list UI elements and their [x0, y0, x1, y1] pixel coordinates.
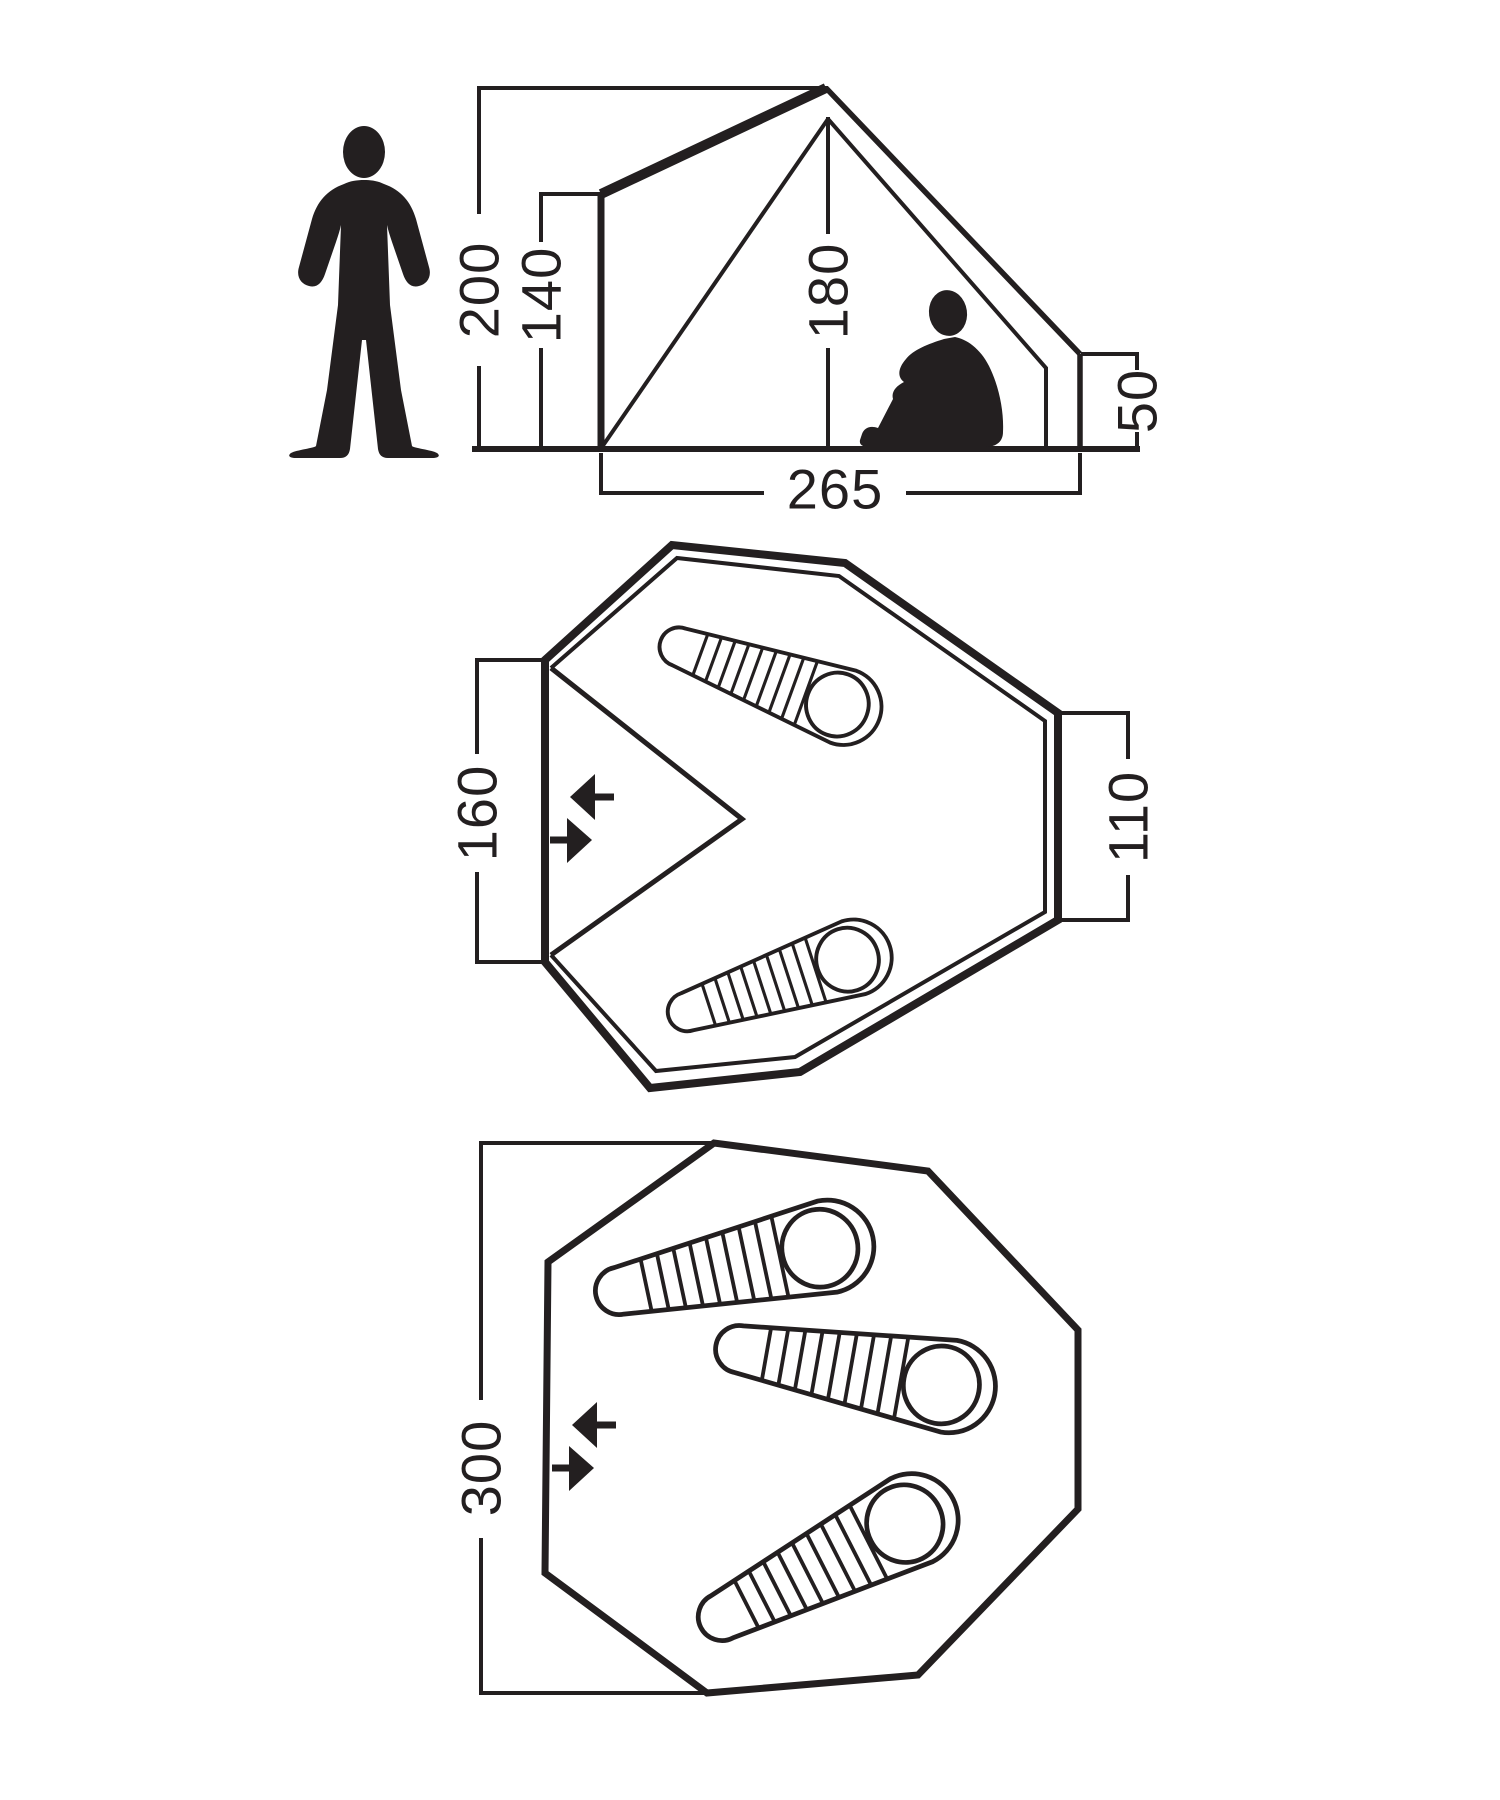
door-v-flaps [551, 668, 742, 955]
floorplan-two-person: 160 110 [446, 545, 1160, 1088]
entrance-arrow-in-icon [550, 818, 592, 863]
entrance-arrow-out-icon [572, 1402, 616, 1448]
dim-inner-height-label: 180 [797, 243, 860, 339]
entrance-arrow-in-icon [552, 1446, 594, 1491]
dim-rear-side-width: 110 [1062, 713, 1160, 920]
person-sitting-silhouette [860, 288, 1003, 447]
dim-floor-length-label: 300 [450, 1420, 513, 1516]
dim-front-wall-height: 140 [510, 194, 602, 449]
sleeping-bag-icon [648, 604, 893, 755]
dim-inner-height: 180 [797, 119, 860, 445]
dim-rear-wall-height: 50 [1083, 354, 1169, 449]
entrance-arrows-icon [550, 774, 614, 863]
dim-peak-height-label: 200 [448, 242, 511, 338]
dim-door-side-width-label: 160 [446, 765, 509, 861]
floorplan-three-person: 300 [450, 1143, 1079, 1693]
dim-floor-depth-label: 265 [787, 458, 883, 521]
dim-rear-wall-height-label: 50 [1106, 369, 1169, 433]
side-view-diagram: 200 140 180 50 265 [289, 88, 1168, 521]
person-standing-silhouette [289, 126, 439, 458]
entrance-arrows-icon [552, 1402, 616, 1491]
dim-rear-side-width-label: 110 [1097, 771, 1160, 863]
entrance-arrow-out-icon [570, 774, 614, 820]
dim-floor-depth: 265 [601, 455, 1080, 521]
sleeping-bag-icon [680, 1458, 975, 1669]
sleeping-bag-icon [708, 1299, 1003, 1440]
tent-spec-sheet: 200 140 180 50 265 [0, 0, 1500, 1800]
dim-door-side-width: 160 [446, 660, 546, 962]
tent-dimension-diagram: 200 140 180 50 265 [0, 0, 1500, 1800]
dim-front-wall-height-label: 140 [510, 247, 573, 343]
sleeping-bag-icon [586, 1191, 882, 1341]
